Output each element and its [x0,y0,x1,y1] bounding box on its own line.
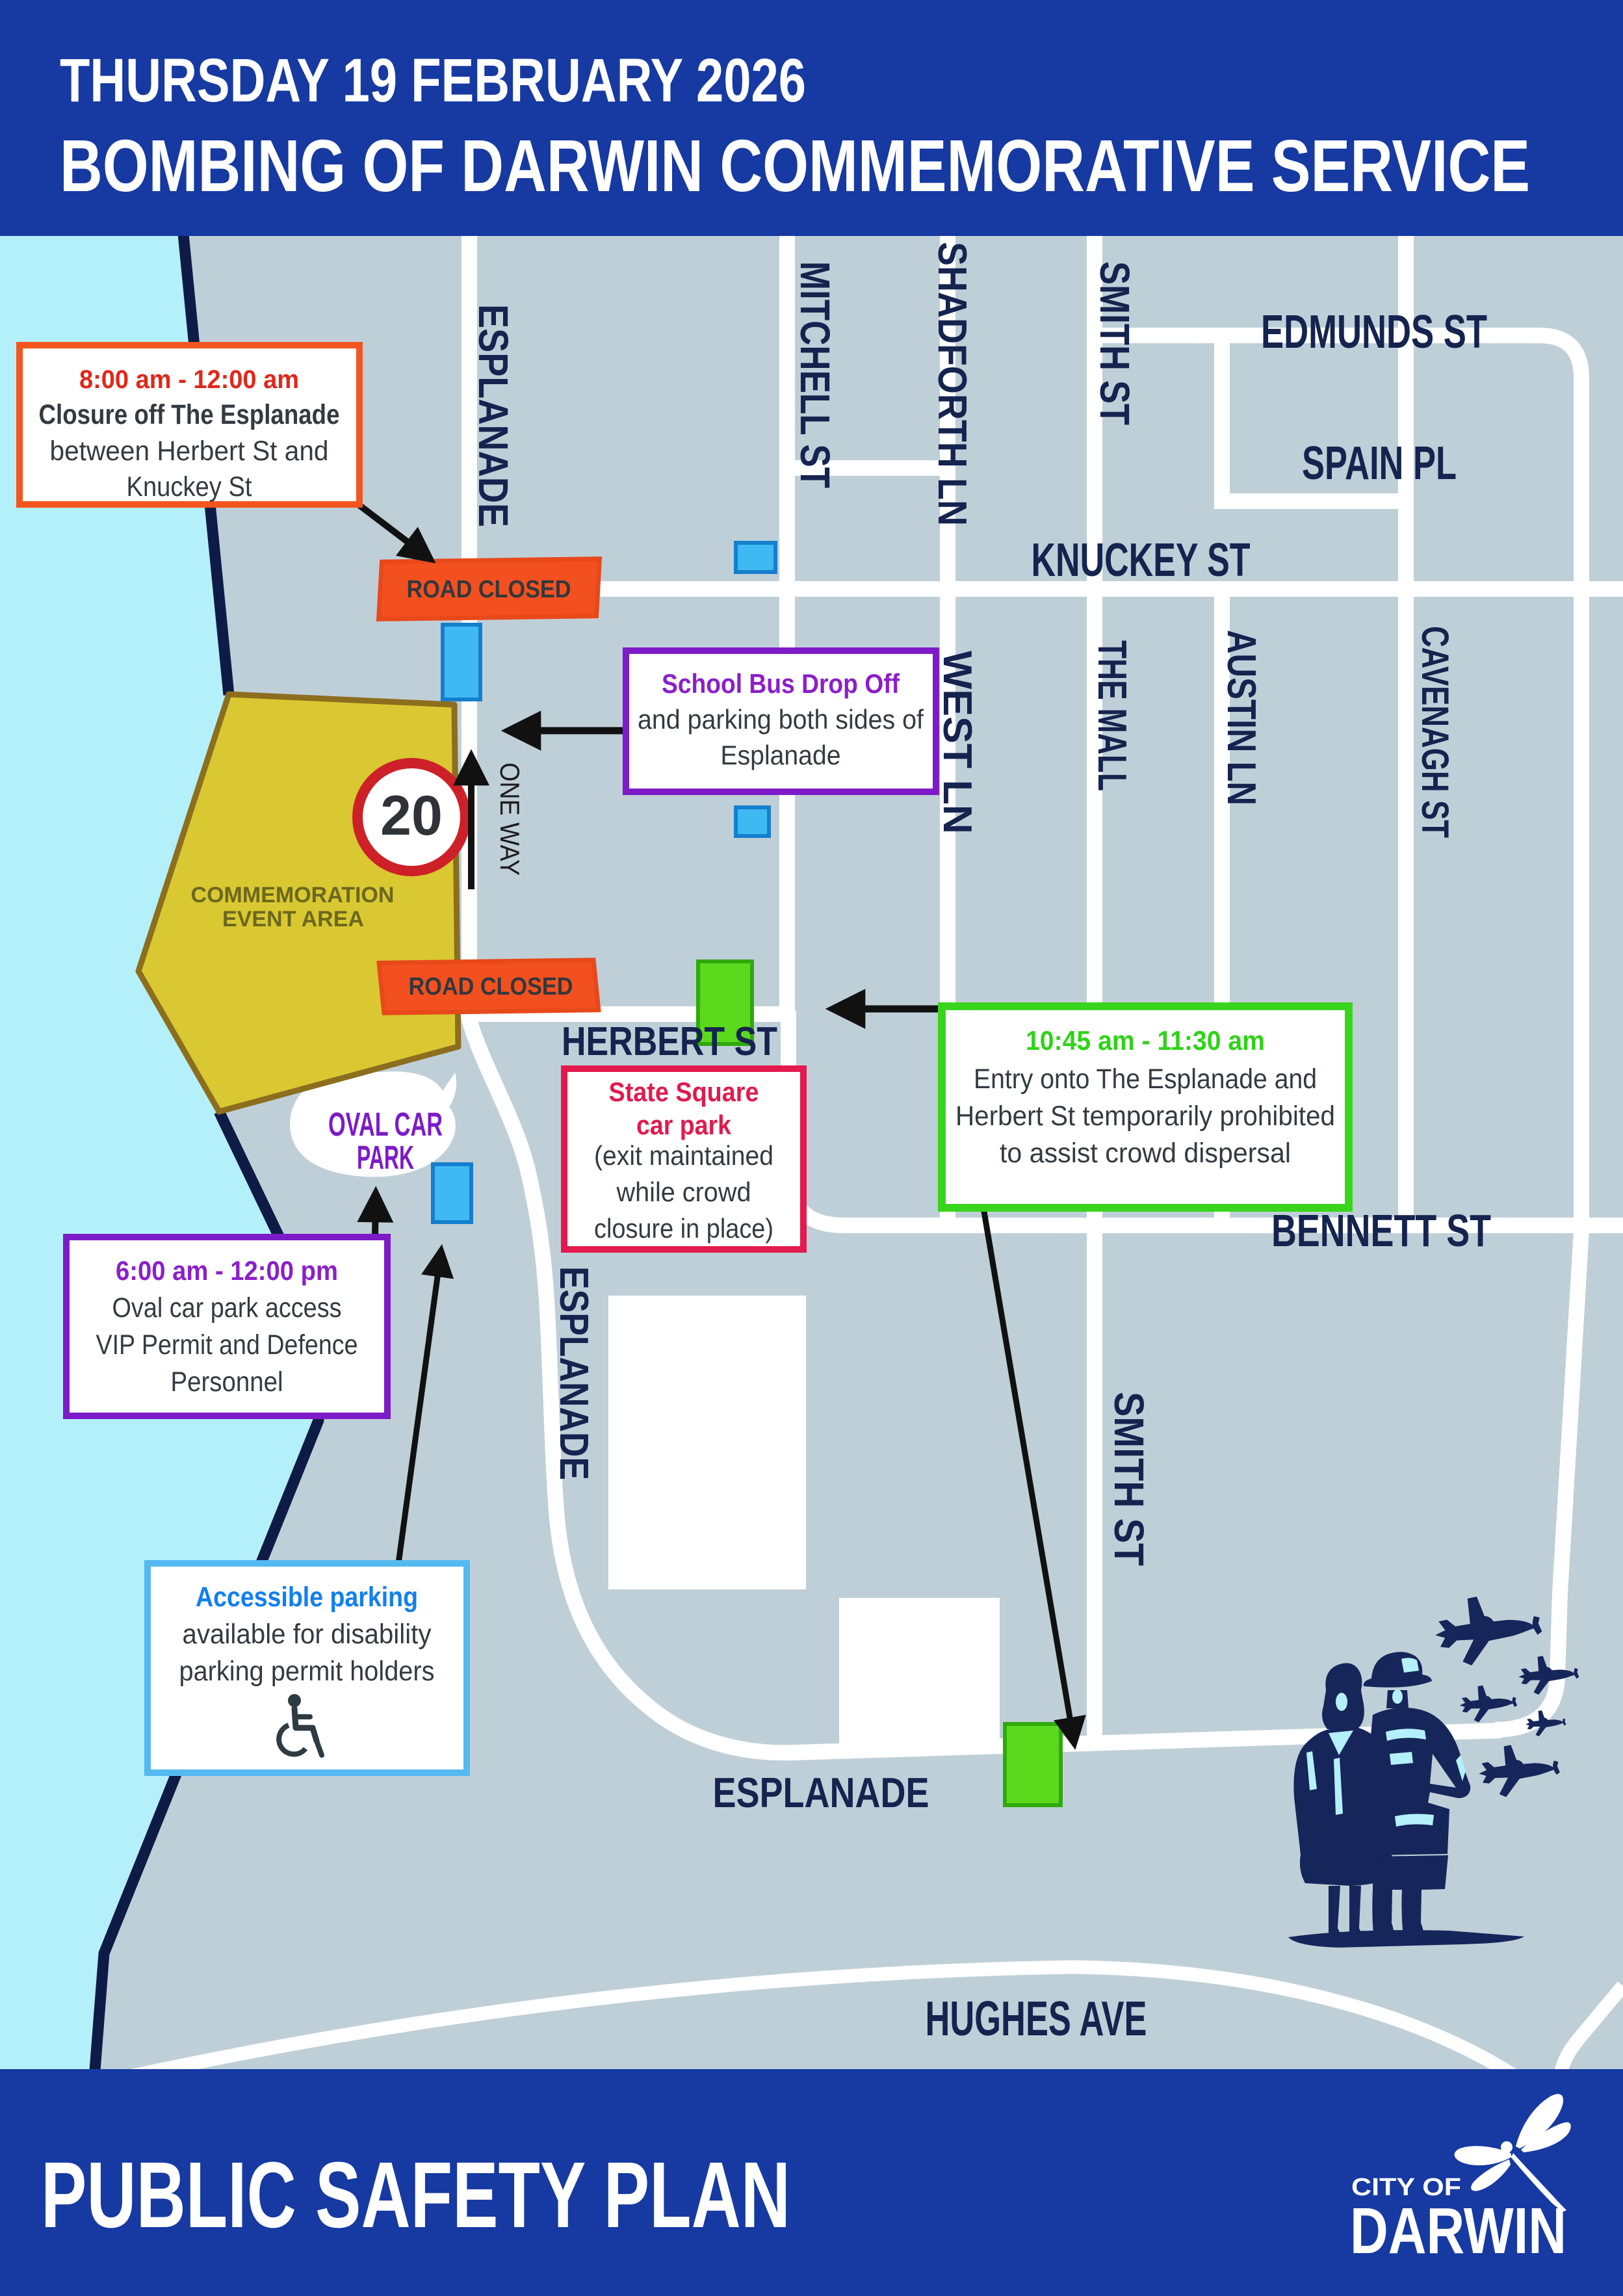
svg-text:SMITH ST: SMITH ST [1106,1392,1152,1566]
svg-text:School Bus Drop Off: School Bus Drop Off [662,668,900,699]
svg-text:Knuckey St: Knuckey St [127,471,252,502]
svg-text:available for disability: available for disability [183,1619,432,1650]
svg-text:WEST LN: WEST LN [935,651,980,834]
svg-text:ONE WAY: ONE WAY [495,763,525,876]
svg-text:HERBERT ST: HERBERT ST [562,1019,777,1064]
svg-text:ROAD CLOSED: ROAD CLOSED [409,973,573,1000]
svg-text:THURSDAY 19 FEBRUARY 2026: THURSDAY 19 FEBRUARY 2026 [60,46,806,115]
svg-text:SHADFORTH LN: SHADFORTH LN [929,242,974,526]
svg-text:Closure off The Esplanade: Closure off The Esplanade [39,399,340,430]
svg-text:EDMUNDS ST: EDMUNDS ST [1261,306,1487,358]
svg-text:Personnel: Personnel [171,1366,283,1398]
svg-text:closure in place): closure in place) [594,1213,773,1244]
svg-text:and parking both sides of: and parking both sides of [638,704,924,735]
svg-text:KNUCKEY ST: KNUCKEY ST [1032,534,1251,586]
svg-text:BOMBING OF DARWIN COMMEMORATIV: BOMBING OF DARWIN COMMEMORATIVE SERVICE [60,125,1530,207]
svg-text:PARK: PARK [357,1139,414,1176]
svg-text:(exit maintained: (exit maintained [594,1140,773,1171]
svg-text:Esplanade: Esplanade [721,740,841,770]
svg-text:parking permit holders: parking permit holders [179,1656,435,1687]
svg-text:ESPLANADE: ESPLANADE [713,1769,929,1816]
svg-text:PUBLIC SAFETY PLAN: PUBLIC SAFETY PLAN [41,2143,790,2247]
svg-text:between Herbert St and: between Herbert St and [50,436,329,467]
svg-text:10:45 am - 11:30 am: 10:45 am - 11:30 am [1026,1025,1265,1056]
svg-text:VIP Permit and Defence: VIP Permit and Defence [96,1329,358,1361]
svg-text:SMITH ST: SMITH ST [1091,261,1138,425]
svg-text:Accessible parking: Accessible parking [196,1582,418,1613]
svg-text:ROAD CLOSED: ROAD CLOSED [407,576,571,603]
svg-text:SPAIN PL: SPAIN PL [1302,437,1457,489]
svg-text:AUSTIN LN: AUSTIN LN [1219,630,1264,805]
svg-text:6:00 am - 12:00 pm: 6:00 am - 12:00 pm [116,1255,338,1286]
svg-text:OVAL CAR: OVAL CAR [328,1106,443,1143]
svg-text:8:00 am - 12:00 am: 8:00 am - 12:00 am [79,365,299,394]
svg-text:20: 20 [380,785,443,847]
svg-text:DARWIN: DARWIN [1350,2195,1566,2267]
svg-text:HUGHES AVE: HUGHES AVE [926,1991,1147,2046]
svg-text:CAVENAGH ST: CAVENAGH ST [1414,626,1456,838]
svg-text:Oval car park access: Oval car park access [112,1292,342,1324]
svg-text:State Square: State Square [609,1076,759,1107]
svg-text:MITCHELL ST: MITCHELL ST [792,261,838,488]
svg-text:THE MALL: THE MALL [1089,640,1134,791]
svg-text:Entry onto The Esplanade and: Entry onto The Esplanade and [974,1063,1317,1095]
svg-text:BENNETT ST: BENNETT ST [1271,1205,1491,1256]
svg-text:Herbert St temporarily prohibi: Herbert St temporarily prohibited [955,1101,1335,1132]
svg-text:to assist crowd dispersal: to assist crowd dispersal [1000,1138,1291,1169]
svg-text:ESPLANADE: ESPLANADE [551,1266,596,1480]
svg-text:ESPLANADE: ESPLANADE [470,304,517,527]
svg-text:car park: car park [636,1110,732,1140]
svg-text:while crowd: while crowd [616,1177,751,1207]
svg-text:COMMEMORATION: COMMEMORATION [191,883,395,907]
svg-text:EVENT AREA: EVENT AREA [222,907,364,932]
